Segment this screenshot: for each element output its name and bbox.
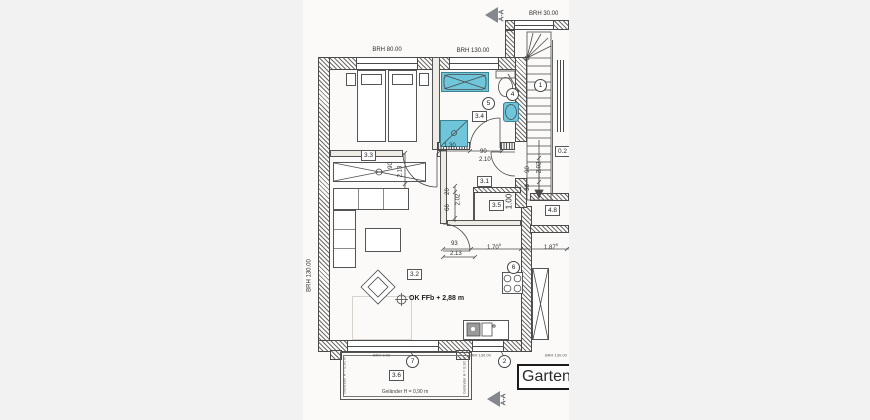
- dim-storage-width: 1.00: [505, 194, 512, 210]
- sofa-left: [333, 210, 356, 268]
- position-number-5: 5: [482, 97, 495, 110]
- wall-stair-left-a: [505, 30, 515, 58]
- room-label-neighbor: 4.8: [545, 205, 560, 216]
- room-label-hall: 3.1: [477, 176, 492, 187]
- room-label-living: 3.2: [407, 269, 422, 280]
- nightstand-right: [419, 73, 429, 86]
- window-stair: [515, 20, 553, 30]
- sofa-top: [333, 188, 409, 210]
- gelaender-label-right: Geländer H = 0,90 m: [463, 357, 467, 394]
- wall-bedroom-bath: [432, 57, 440, 150]
- wall-bath-hall-2: [500, 142, 515, 150]
- garten-label: Garten: [519, 366, 569, 387]
- window-balcony-door: [348, 340, 438, 352]
- room-label-bath: 3.4: [472, 111, 487, 122]
- brh-kitchen-window-label: BRH 130.00: [469, 354, 491, 358]
- wall-storage-left: [473, 193, 475, 220]
- dim-livingdoor-height: 2.13: [450, 251, 462, 258]
- dim-bathdoor-height: 2.10: [479, 157, 491, 164]
- brh-stair-label: BRH 30.00: [529, 11, 569, 18]
- dim-livingdoor-width: 93: [451, 241, 458, 248]
- window-bath: [450, 57, 498, 70]
- window-kitchen: [473, 340, 503, 352]
- brh-bath-label: BRH 130.00: [447, 48, 499, 55]
- wall-right-strip-1: [530, 193, 569, 201]
- garten-box: Garten: [517, 364, 569, 390]
- position-number-7: 7: [406, 355, 419, 368]
- position-number-6: 6: [507, 261, 520, 274]
- gelaender-label-left: Geländer H = 0,90 m: [343, 357, 347, 394]
- ffb-annotation: OK FFb + 2,88 m: [409, 295, 464, 302]
- dim-right-90: 90: [525, 166, 532, 173]
- room-label-storage: 3.5: [489, 200, 504, 211]
- washbasin: [503, 102, 519, 122]
- dim-right-202: 2.02: [536, 162, 543, 174]
- section-label-top: A-A: [498, 10, 505, 22]
- section-label-bottom: A-A: [500, 394, 507, 406]
- nightstand-left: [346, 73, 356, 86]
- scanned-floorplan: BRH 80.00 BRH 130.00 BRH 30.00 BRH 130.0…: [0, 0, 870, 420]
- bathtub: [441, 72, 489, 92]
- room-label-bedroom: 3.3: [361, 150, 376, 161]
- stair-handrail: [552, 40, 555, 195]
- wall-stair-top-1: [505, 20, 515, 30]
- dim-niche-202: 2.02: [455, 194, 462, 206]
- dim-187: 1.875: [544, 241, 558, 252]
- rug: [352, 296, 412, 340]
- wall-storage-top: [473, 187, 521, 193]
- position-number-4: 4: [506, 88, 519, 101]
- dim-bedroomdoor-height: 2.13: [397, 166, 404, 178]
- brh-right-window-label: BRH 130.00: [545, 354, 567, 358]
- brh-left-wall-label: BRH 130.00: [307, 253, 314, 299]
- dim-shower-width: 1.30: [444, 143, 456, 150]
- dim-bathdoor-width: 90: [480, 149, 487, 156]
- wall-stair-left-b: [515, 57, 527, 142]
- dim-niche-66: 66: [445, 204, 452, 211]
- wall-stair-left-c: [515, 178, 527, 208]
- room-label-balcony: 3.6: [389, 370, 404, 381]
- coffee-table: [365, 228, 401, 252]
- room-label-partial-right: 0.2: [555, 146, 569, 157]
- section-arrow-bottom-icon: [487, 391, 500, 407]
- dim-right-38: 38: [525, 184, 532, 191]
- brh-bedroom-label: BRH 80.00: [360, 47, 414, 54]
- gelaender-label-bottom: Geländer H = 0,90 m: [355, 389, 455, 395]
- brh-balcony-door-label: BRH 0.00: [373, 354, 390, 358]
- wall-left: [318, 57, 330, 352]
- kitchen-counter: [463, 320, 509, 340]
- wardrobe: [333, 162, 426, 182]
- dim-170: 1.705: [487, 241, 501, 252]
- section-arrow-top-icon: [485, 7, 498, 23]
- wall-right-strip-2: [530, 225, 569, 233]
- position-number-2: 2: [498, 355, 511, 368]
- dim-bedroomdoor-width: 90: [388, 162, 395, 169]
- wall-hall-bottom: [447, 220, 521, 226]
- pillow-right: [392, 74, 413, 85]
- pillow-left: [361, 74, 382, 85]
- dim-niche-20: 20: [445, 188, 452, 195]
- position-number-1: 1: [534, 79, 547, 92]
- wall-stair-top-2: [553, 20, 569, 30]
- floorplan-paper: BRH 80.00 BRH 130.00 BRH 30.00 BRH 130.0…: [303, 0, 569, 420]
- tall-cabinet: [532, 268, 549, 340]
- stove: [502, 272, 523, 294]
- window-bedroom: [357, 57, 417, 70]
- window-stair-side: [557, 60, 564, 132]
